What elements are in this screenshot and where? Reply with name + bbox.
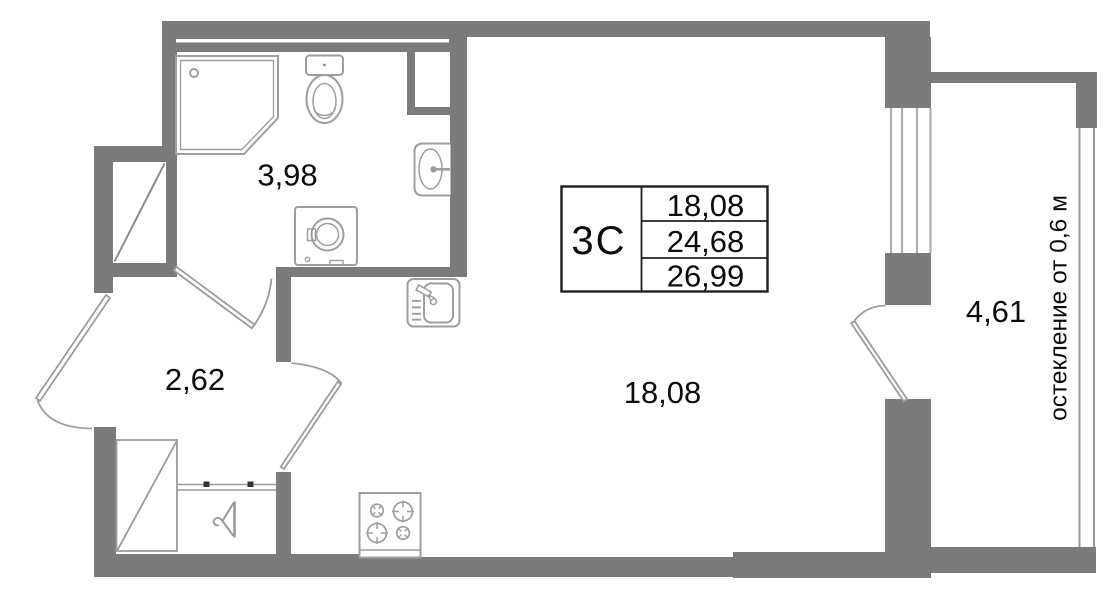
svg-text:4,61: 4,61 (966, 294, 1026, 329)
svg-text:2,62: 2,62 (165, 362, 225, 397)
svg-text:3,98: 3,98 (257, 158, 317, 193)
svg-text:24,68: 24,68 (667, 224, 745, 259)
svg-text:остекление от 0,6 м: остекление от 0,6 м (1046, 195, 1073, 421)
svg-text:18,08: 18,08 (667, 188, 745, 223)
svg-text:26,99: 26,99 (667, 259, 745, 294)
svg-text:18,08: 18,08 (624, 375, 702, 410)
svg-text:3С: 3С (571, 219, 626, 263)
